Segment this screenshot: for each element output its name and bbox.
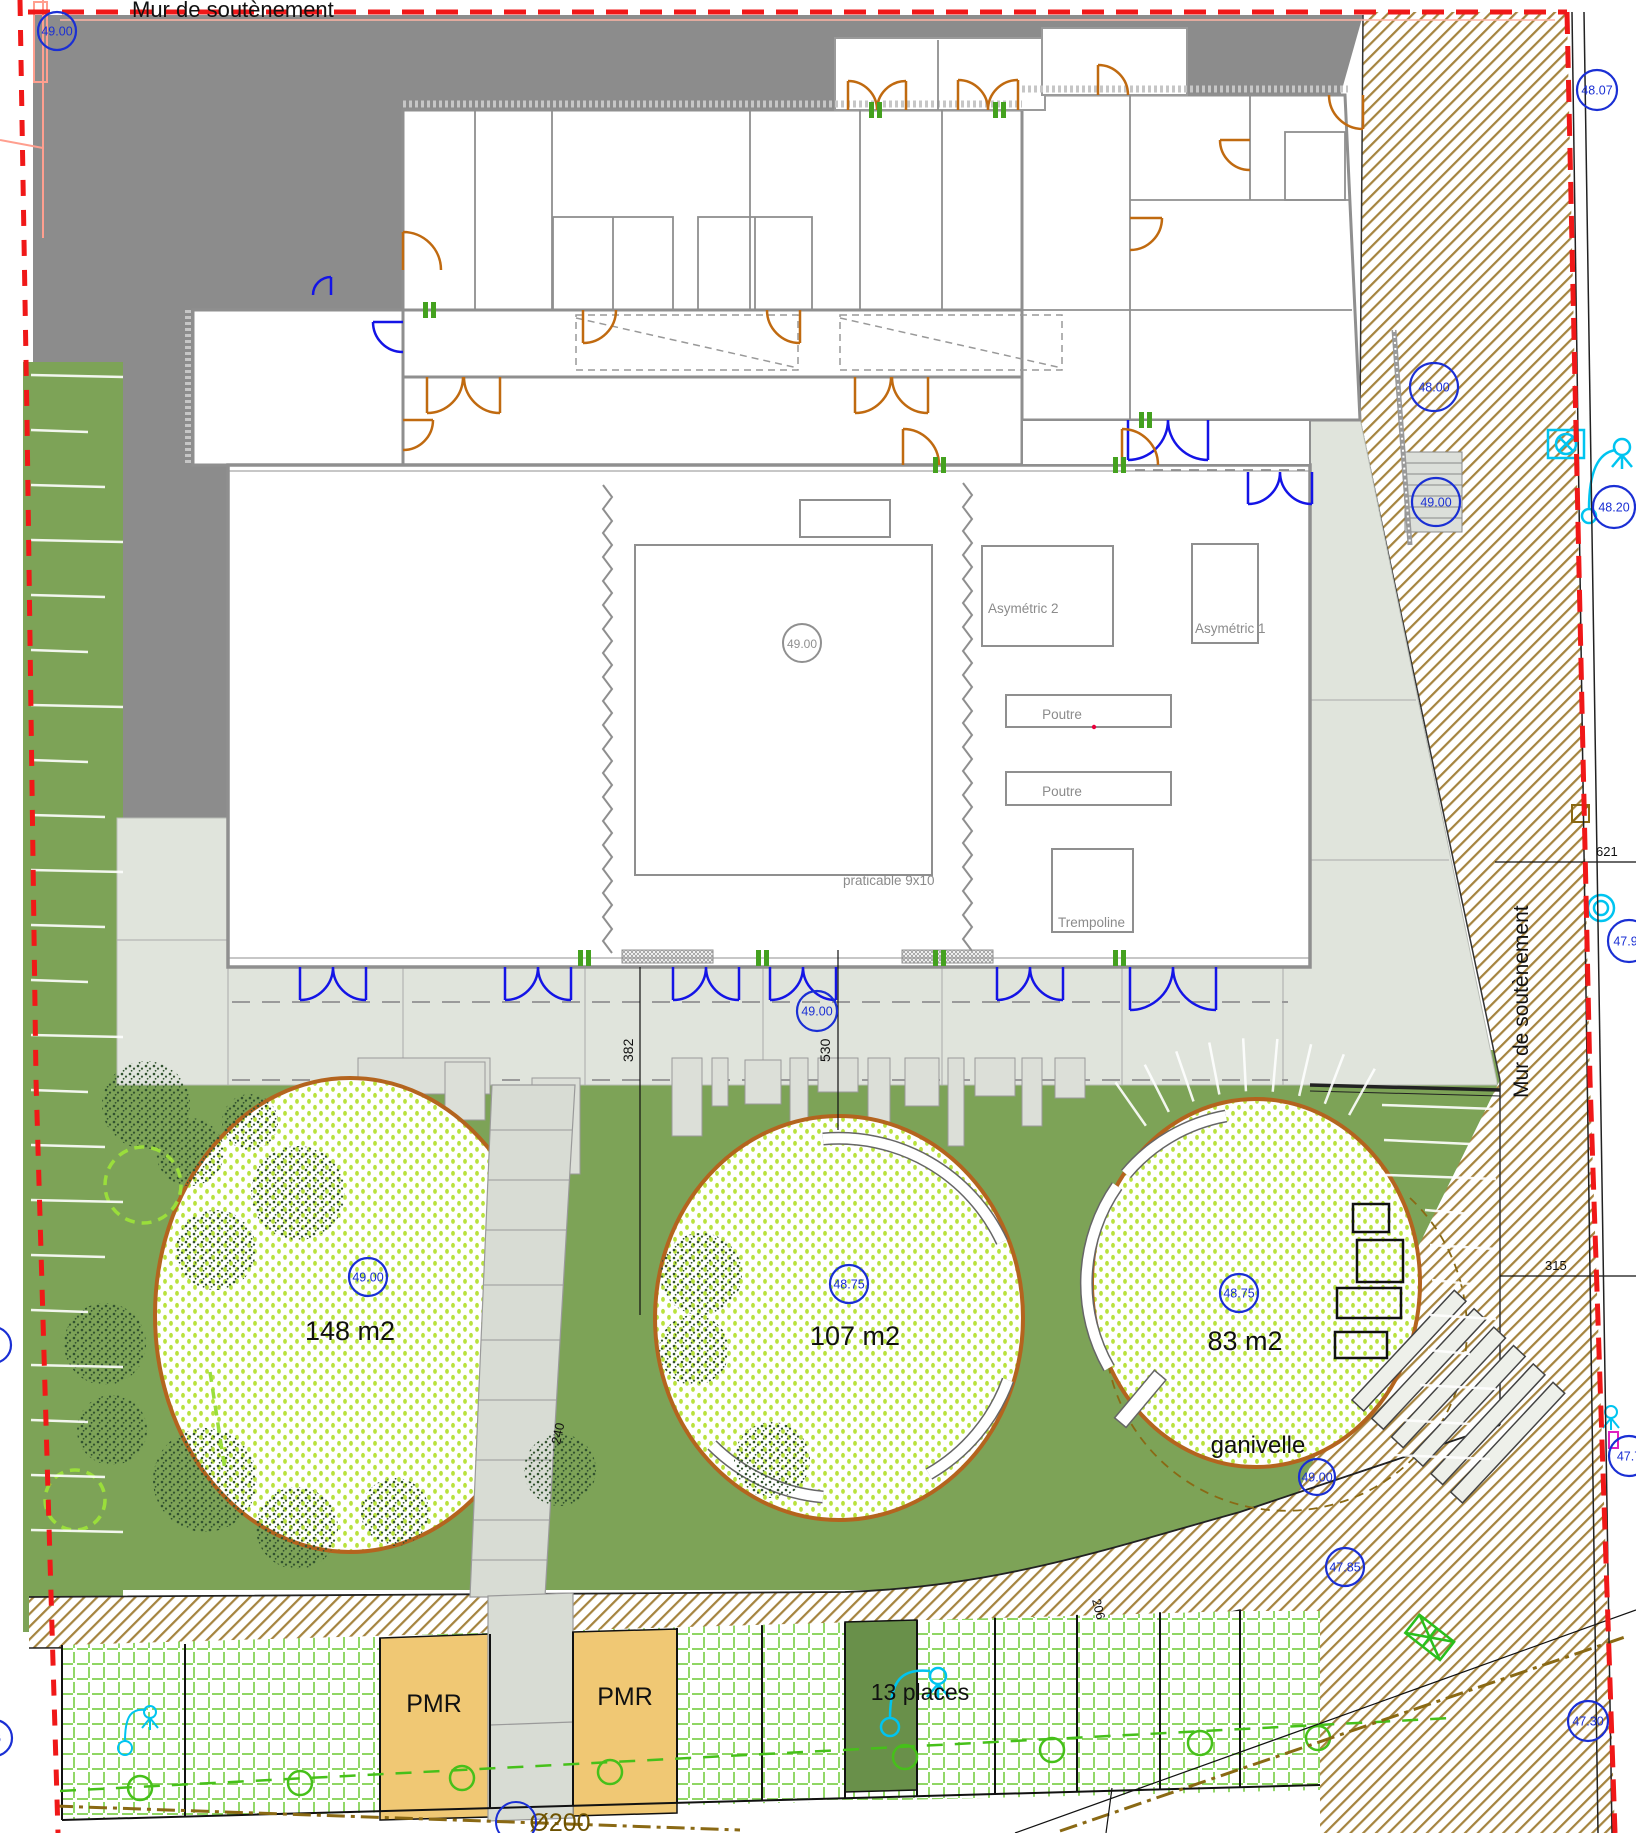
elevation-badge: 48.07 [1577, 70, 1617, 110]
trampoline-label: Trempoline [1058, 915, 1125, 930]
top-title: Mur de soutènement [132, 0, 334, 22]
tree [64, 1303, 146, 1385]
door-jamb-icon [423, 302, 428, 318]
dim-530: 530 [817, 1038, 833, 1062]
elevation-value: 48.75 [833, 1278, 864, 1292]
red-marker-dot [1092, 725, 1096, 729]
pmr-2-label: PMR [597, 1683, 653, 1711]
door-jamb-icon [756, 950, 761, 966]
pipe-label: Ø200 [529, 1809, 590, 1833]
tree [156, 1118, 224, 1186]
tree [659, 1315, 729, 1385]
door-jamb-icon [1113, 950, 1118, 966]
grille-2 [902, 950, 993, 963]
dim-315: 315 [1545, 1258, 1567, 1273]
roof-room-1 [835, 38, 1045, 110]
elevation-value: 49.00 [801, 1005, 832, 1019]
dim-382: 382 [620, 1038, 636, 1062]
elevation-value: 49.00 [352, 1271, 383, 1285]
pmr-stall-1 [380, 1634, 490, 1820]
area-1-label: 148 m2 [305, 1316, 395, 1346]
door-jamb-icon [1139, 412, 1144, 428]
elevation-badge: 47.95 [1608, 920, 1636, 962]
elevation-value: 47.30 [1572, 1715, 1603, 1729]
right-wall-title: Mur de soutènement [1510, 905, 1533, 1098]
parking-path [488, 1593, 573, 1821]
ganivelle-label: ganivelle [1211, 1432, 1306, 1459]
pmr-stall-2 [573, 1629, 677, 1816]
door-jamb-icon [869, 102, 874, 118]
roof-room-2 [1042, 28, 1187, 95]
poutre-1-label: Poutre [1042, 707, 1082, 722]
area-2-label: 107 m2 [810, 1321, 900, 1351]
elevation-value: 48.20 [1598, 501, 1629, 515]
door-jamb-icon [933, 950, 938, 966]
tree [153, 1428, 257, 1532]
elevation-badge: 47.7 [1609, 1436, 1636, 1476]
sand-circle-2 [655, 1116, 1023, 1520]
grille-1 [622, 950, 713, 963]
tree [77, 1395, 147, 1465]
elevation-value: 47.95 [1613, 935, 1636, 949]
elevation-value: 48.75 [1223, 1287, 1254, 1301]
elevation-badge: 48.20 [1593, 486, 1635, 528]
asymetric-1-label: Asymétric 1 [1195, 621, 1266, 636]
door-jamb-icon [578, 950, 583, 966]
mat-label: praticable 9x10 [843, 873, 935, 888]
tree [176, 1210, 256, 1290]
area-3-label: 83 m2 [1207, 1326, 1282, 1356]
west-wing [193, 310, 403, 465]
poutre-2-label: Poutre [1042, 784, 1082, 799]
door-jamb-icon [1113, 457, 1118, 473]
asymetric-2-label: Asymétric 2 [988, 601, 1059, 616]
elevation-value: 48.07 [1581, 84, 1612, 98]
tree [734, 1422, 810, 1498]
tree [256, 1487, 338, 1569]
manhole-icon [1588, 895, 1614, 921]
elevation-value: 49.00 [1420, 496, 1451, 510]
door-jamb-icon [993, 102, 998, 118]
elevation-value: 49.00 [1301, 1471, 1332, 1485]
planted-stall [845, 1620, 917, 1792]
elevation-badge: 1 [0, 1327, 11, 1363]
site-plan-drawing: Mur de soutènement Mur de soutènement As… [0, 0, 1636, 1833]
gym-hall [228, 465, 1310, 967]
northeast-block [1022, 95, 1360, 420]
elevation-value: 47.7 [1617, 1450, 1636, 1464]
tree [222, 1094, 278, 1150]
elevation-value: 49.00 [41, 25, 72, 39]
north-rooms [403, 110, 1022, 310]
places-label: 13 places [871, 1679, 969, 1705]
door-jamb-icon [933, 457, 938, 473]
elevation-value: 06 [0, 1732, 1, 1746]
tree [251, 1146, 345, 1240]
elevation-value: 48.00 [1418, 381, 1449, 395]
site-plan: Mur de soutènement Mur de soutènement As… [0, 0, 1636, 1833]
elevation-value: 47.85 [1329, 1561, 1360, 1575]
dim-621: 621 [1596, 844, 1618, 859]
paver-stalls [62, 1611, 1320, 1820]
tree [660, 1233, 742, 1315]
east-link [1022, 420, 1310, 465]
mat-level-label: 49.00 [787, 637, 817, 651]
elevation-badge: 06 [0, 1720, 12, 1756]
tree [361, 1478, 429, 1546]
pmr-1-label: PMR [406, 1690, 462, 1718]
